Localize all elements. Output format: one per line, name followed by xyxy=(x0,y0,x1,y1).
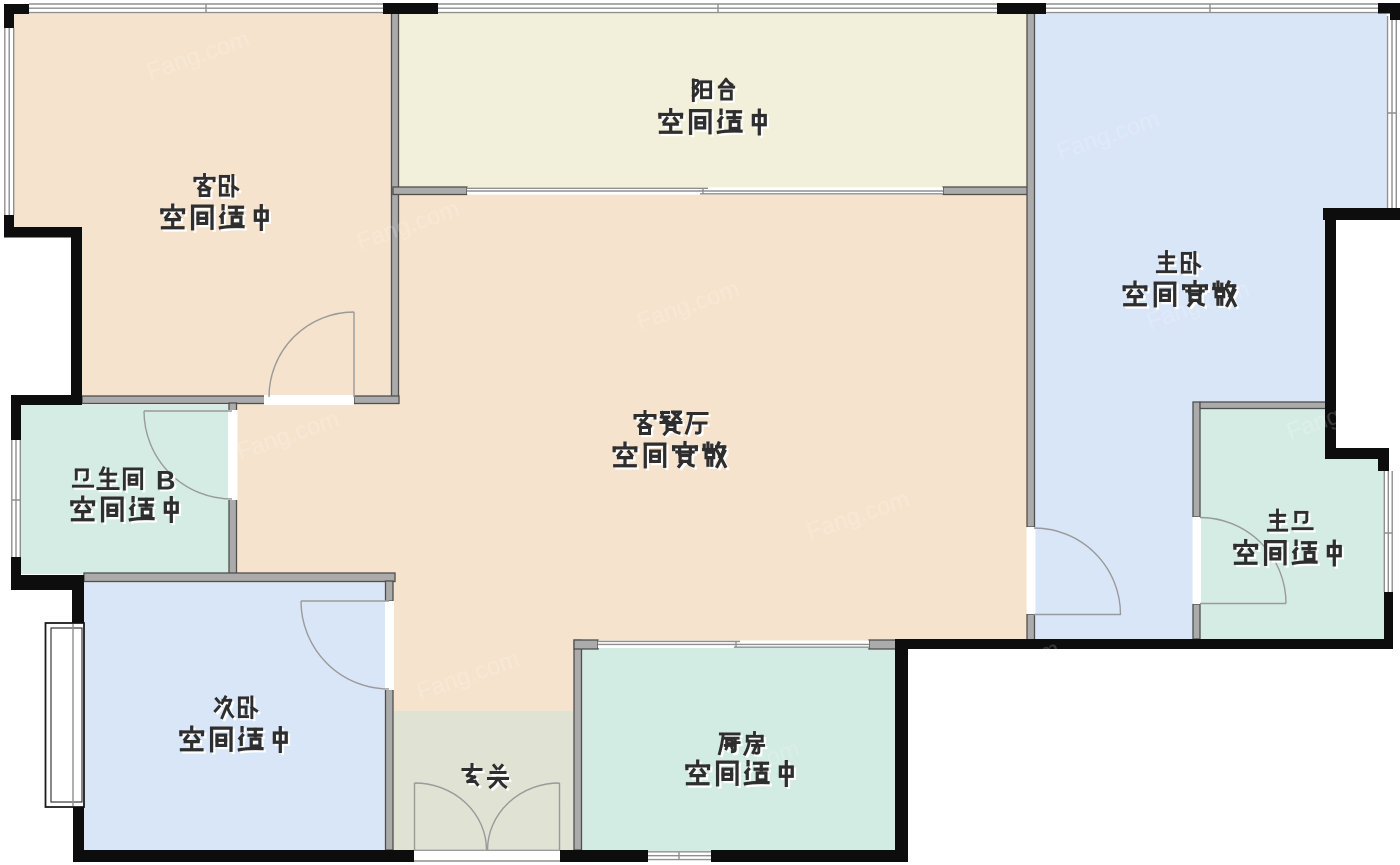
svg-text:B: B xyxy=(156,466,176,496)
